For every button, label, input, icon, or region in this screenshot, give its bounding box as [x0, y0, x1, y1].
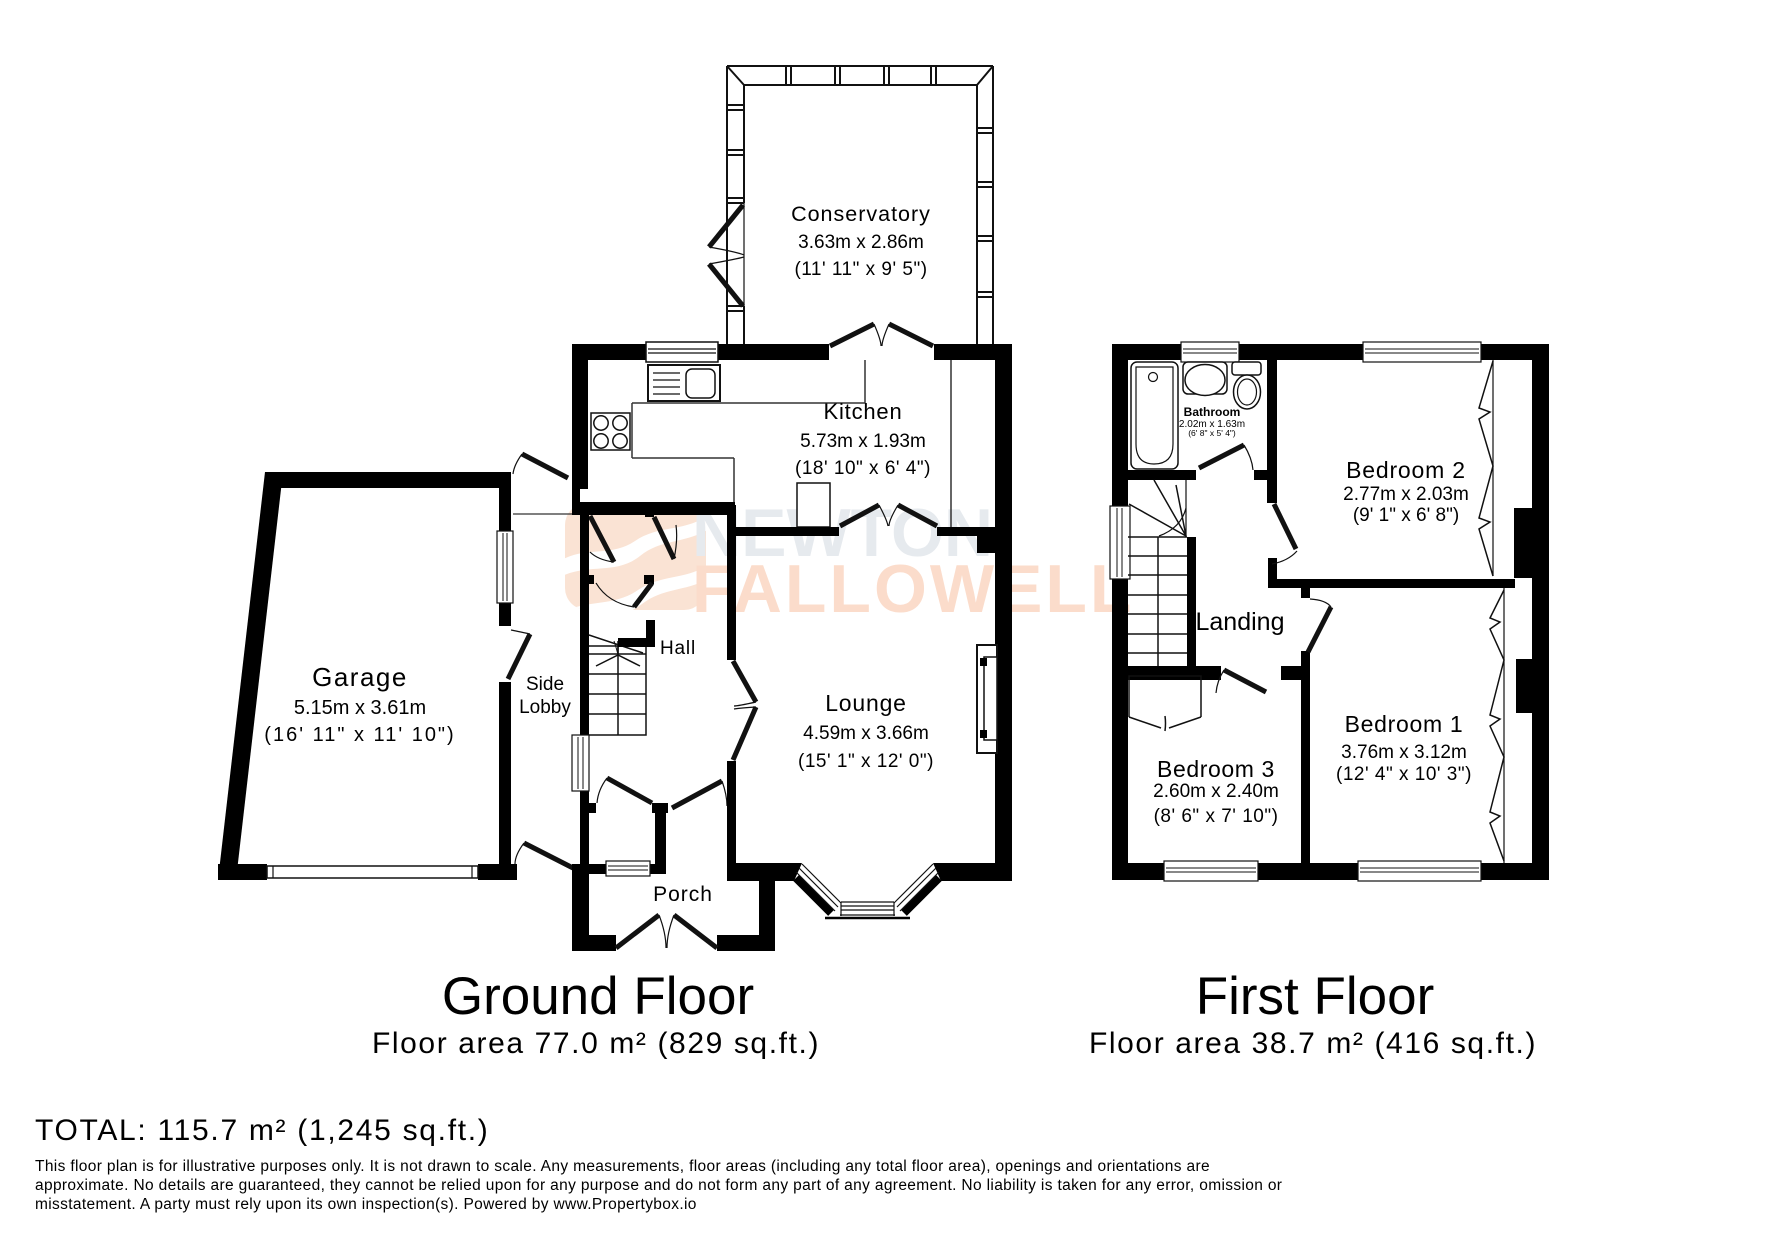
svg-text:Lobby: Lobby: [519, 697, 571, 718]
svg-text:Floor area 77.0 m² (829 sq.ft.: Floor area 77.0 m² (829 sq.ft.): [372, 1027, 820, 1060]
svg-text:misstatement. A party must rel: misstatement. A party must rely upon its…: [35, 1196, 697, 1213]
svg-text:Floor area 38.7 m² (416 sq.ft.: Floor area 38.7 m² (416 sq.ft.): [1089, 1027, 1537, 1060]
svg-text:Conservatory: Conservatory: [791, 202, 931, 226]
svg-text:Bathroom: Bathroom: [1184, 405, 1241, 419]
svg-text:Bedroom 1: Bedroom 1: [1345, 711, 1464, 737]
svg-text:4.59m x 3.66m: 4.59m x 3.66m: [803, 723, 929, 744]
svg-text:TOTAL: 115.7 m² (1,245 sq.ft.): TOTAL: 115.7 m² (1,245 sq.ft.): [35, 1114, 490, 1147]
svg-text:(11' 11" x 9' 5"): (11' 11" x 9' 5"): [794, 259, 927, 280]
svg-text:Landing: Landing: [1196, 608, 1285, 636]
svg-text:approximate. No details are gu: approximate. No details are guaranteed, …: [35, 1177, 1282, 1194]
svg-text:First Floor: First Floor: [1196, 967, 1435, 1026]
svg-text:2.77m x 2.03m: 2.77m x 2.03m: [1343, 484, 1469, 505]
svg-text:(6' 8" x 5' 4"): (6' 8" x 5' 4"): [1188, 428, 1236, 438]
svg-text:(12' 4" x 10' 3"): (12' 4" x 10' 3"): [1336, 764, 1472, 785]
svg-text:Garage: Garage: [312, 662, 408, 692]
svg-text:(18' 10" x 6' 4"): (18' 10" x 6' 4"): [795, 458, 931, 479]
svg-text:5.15m x 3.61m: 5.15m x 3.61m: [294, 697, 426, 719]
svg-text:Side: Side: [526, 674, 564, 695]
svg-text:2.60m x 2.40m: 2.60m x 2.40m: [1153, 781, 1279, 802]
svg-text:(8' 6" x 7' 10"): (8' 6" x 7' 10"): [1154, 806, 1279, 827]
svg-text:Hall: Hall: [660, 638, 696, 659]
svg-text:Kitchen: Kitchen: [824, 399, 903, 424]
svg-text:Bedroom 2: Bedroom 2: [1346, 457, 1466, 483]
svg-text:(16' 11" x 11' 10"): (16' 11" x 11' 10"): [264, 724, 455, 746]
svg-text:Lounge: Lounge: [825, 690, 907, 716]
svg-text:3.63m x 2.86m: 3.63m x 2.86m: [798, 232, 924, 253]
svg-text:3.76m x 3.12m: 3.76m x 3.12m: [1341, 742, 1467, 763]
svg-text:5.73m x 1.93m: 5.73m x 1.93m: [800, 431, 926, 452]
svg-text:(15' 1" x 12' 0"): (15' 1" x 12' 0"): [798, 751, 934, 772]
svg-text:FALLOWELL: FALLOWELL: [692, 551, 1134, 627]
svg-text:(9' 1" x 6' 8"): (9' 1" x 6' 8"): [1353, 505, 1459, 526]
svg-text:This floor plan is for illustr: This floor plan is for illustrative purp…: [35, 1158, 1210, 1175]
svg-text:Ground Floor: Ground Floor: [442, 967, 754, 1026]
svg-text:Porch: Porch: [653, 883, 713, 906]
svg-text:Bedroom 3: Bedroom 3: [1157, 756, 1275, 782]
